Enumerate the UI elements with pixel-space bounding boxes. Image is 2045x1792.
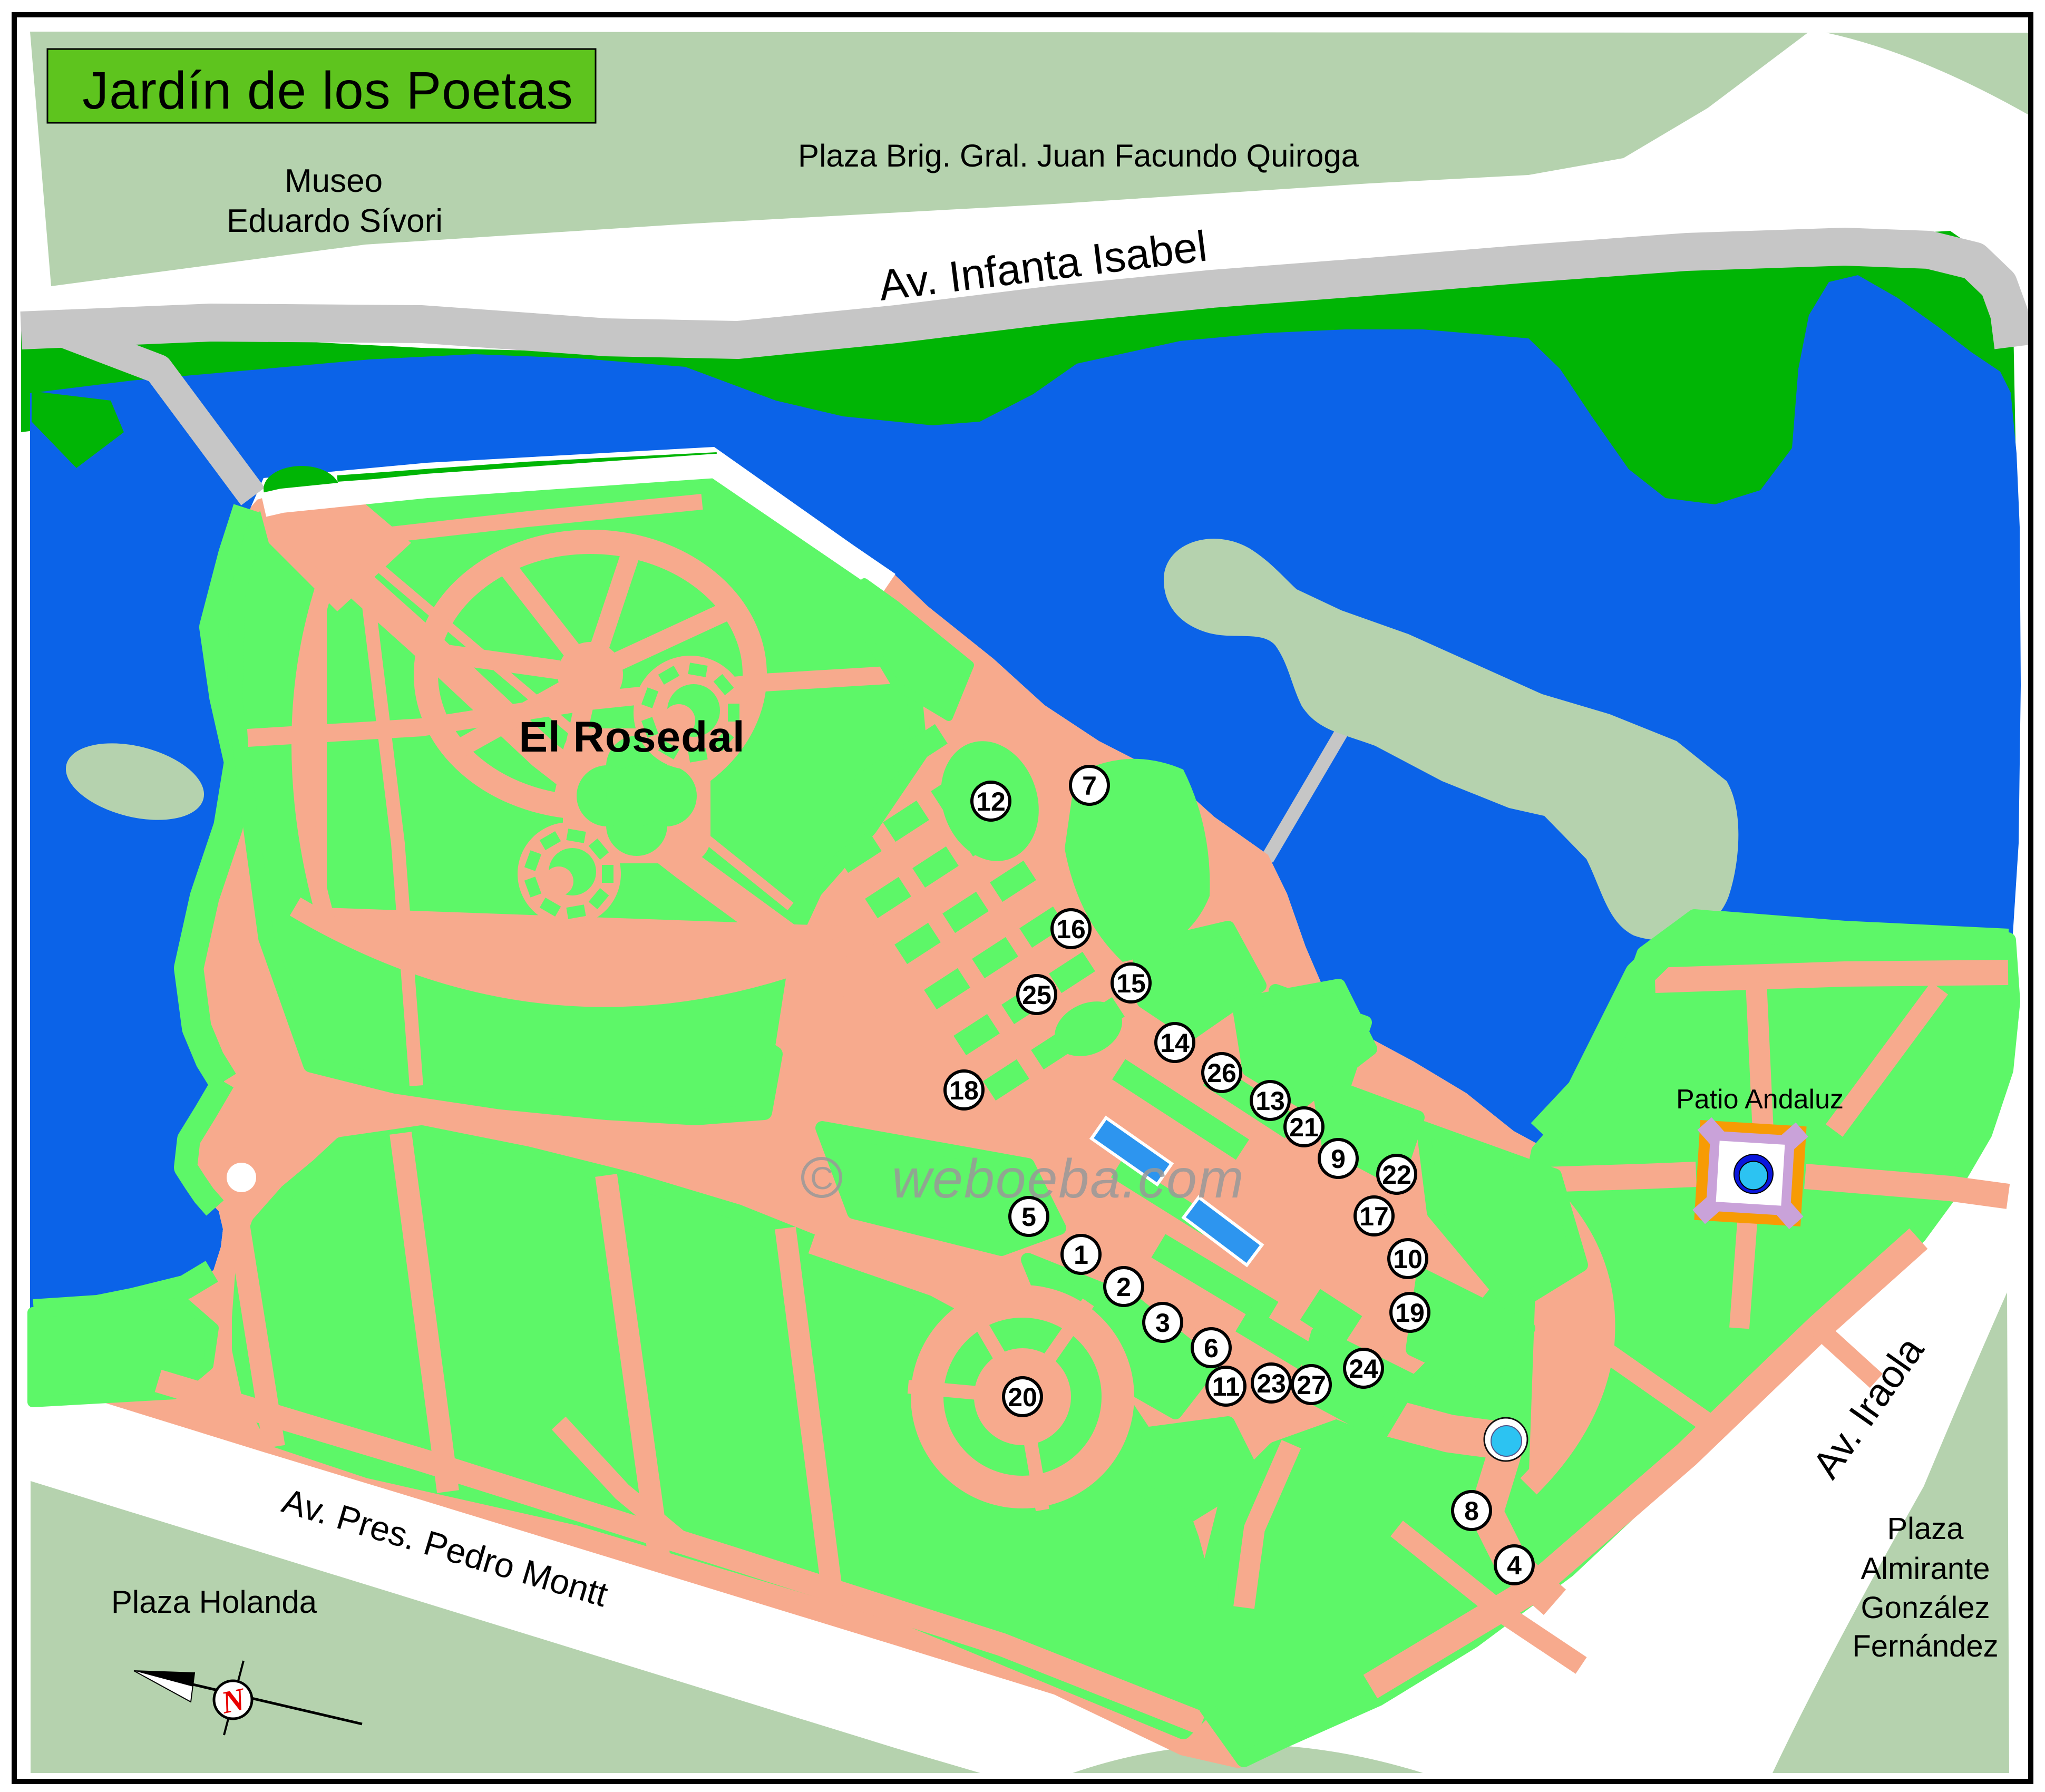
- svg-text:C: C: [810, 1161, 833, 1196]
- svg-text:11: 11: [1212, 1372, 1240, 1401]
- svg-text:Museo: Museo: [285, 163, 383, 199]
- svg-text:21: 21: [1289, 1113, 1319, 1142]
- svg-text:Plaza: Plaza: [1887, 1512, 1964, 1546]
- svg-text:El Rosedal: El Rosedal: [519, 713, 745, 761]
- svg-text:10: 10: [1393, 1244, 1423, 1274]
- svg-text:22: 22: [1382, 1160, 1411, 1190]
- svg-text:Patio Andaluz: Patio Andaluz: [1676, 1084, 1844, 1115]
- svg-text:Eduardo Sívori: Eduardo Sívori: [227, 203, 443, 239]
- svg-text:14: 14: [1160, 1028, 1190, 1058]
- svg-text:4: 4: [1507, 1551, 1522, 1580]
- svg-text:19: 19: [1395, 1298, 1425, 1328]
- svg-text:González: González: [1861, 1591, 1990, 1625]
- svg-text:24: 24: [1349, 1354, 1378, 1384]
- svg-text:23: 23: [1257, 1369, 1286, 1398]
- svg-text:25: 25: [1022, 980, 1051, 1010]
- svg-text:18: 18: [949, 1076, 979, 1105]
- svg-text:16: 16: [1056, 914, 1086, 944]
- svg-text:27: 27: [1297, 1370, 1326, 1400]
- svg-text:Fernández: Fernández: [1852, 1629, 1998, 1663]
- svg-text:12: 12: [976, 787, 1006, 816]
- svg-text:13: 13: [1255, 1086, 1285, 1116]
- svg-text:Plaza Brig. Gral. Juan Facundo: Plaza Brig. Gral. Juan Facundo Quiroga: [798, 138, 1359, 173]
- svg-text:Jardín de los Poetas: Jardín de los Poetas: [82, 61, 573, 120]
- svg-text:2: 2: [1116, 1272, 1131, 1302]
- svg-text:20: 20: [1008, 1382, 1037, 1412]
- svg-text:weboeba.com: weboeba.com: [892, 1148, 1245, 1210]
- svg-text:26: 26: [1207, 1058, 1236, 1088]
- svg-text:Almirante: Almirante: [1861, 1552, 1990, 1586]
- svg-text:15: 15: [1116, 969, 1146, 998]
- svg-text:3: 3: [1155, 1308, 1170, 1338]
- svg-text:6: 6: [1204, 1333, 1219, 1363]
- svg-text:8: 8: [1464, 1496, 1479, 1526]
- svg-text:7: 7: [1082, 771, 1097, 801]
- svg-text:1: 1: [1074, 1240, 1088, 1270]
- svg-text:17: 17: [1359, 1202, 1389, 1231]
- svg-text:Plaza Holanda: Plaza Holanda: [111, 1584, 317, 1620]
- svg-text:9: 9: [1331, 1144, 1346, 1174]
